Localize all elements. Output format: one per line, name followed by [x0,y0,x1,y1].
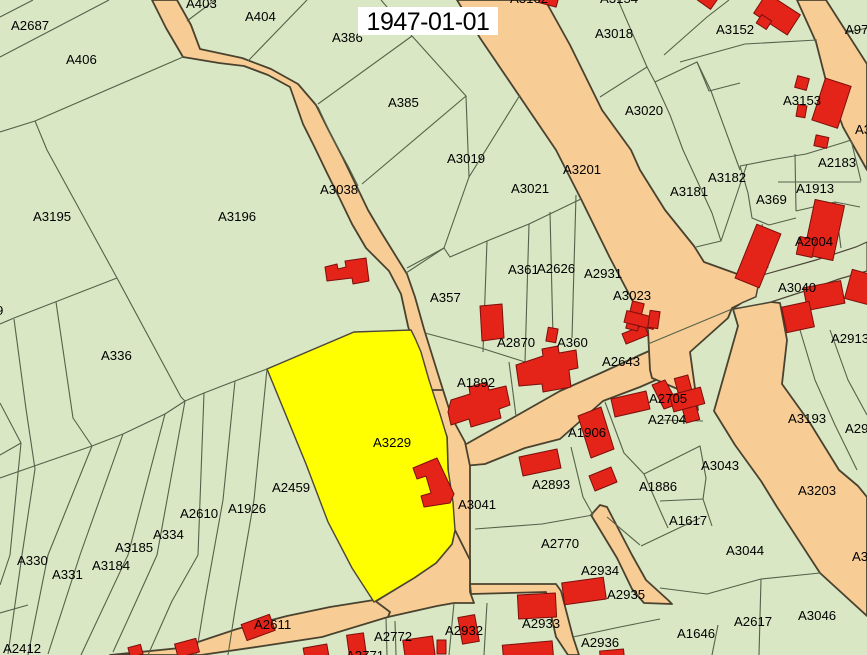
svg-text:A2611: A2611 [254,617,291,632]
svg-text:A1926: A1926 [228,501,266,516]
svg-text:A2687: A2687 [11,18,49,33]
svg-text:A2771: A2771 [346,648,384,655]
svg-text:A2770: A2770 [541,536,579,551]
svg-text:A357: A357 [430,290,461,305]
svg-text:A29: A29 [845,421,867,436]
svg-text:A3021: A3021 [511,181,549,196]
svg-text:A2610: A2610 [180,506,218,521]
svg-text:A3195: A3195 [33,209,71,224]
svg-text:A3152: A3152 [716,22,754,37]
svg-text:A385: A385 [388,95,419,110]
svg-text:A3196: A3196 [218,209,256,224]
svg-text:A3046: A3046 [798,608,836,623]
svg-text:A3203: A3203 [798,483,836,498]
svg-text:A1617: A1617 [669,513,707,528]
svg-text:A1906: A1906 [568,425,606,440]
svg-text:A361: A361 [508,262,539,277]
svg-text:A3182: A3182 [708,170,746,185]
svg-text:A2643: A2643 [602,354,640,369]
svg-text:A3020: A3020 [625,103,663,118]
svg-text:A2183: A2183 [818,155,856,170]
svg-text:A2932: A2932 [445,623,483,638]
svg-text:A330: A330 [17,553,48,568]
svg-text:A2934: A2934 [581,563,619,578]
svg-text:A1646: A1646 [677,626,715,641]
svg-text:A3154: A3154 [600,0,638,6]
svg-text:A3: A3 [855,122,867,137]
svg-text:A2933: A2933 [522,616,560,631]
svg-text:A2870: A2870 [497,335,535,350]
svg-text:A97: A97 [845,22,867,37]
svg-text:A3018: A3018 [595,26,633,41]
svg-text:A360: A360 [557,335,588,350]
svg-text:A3041: A3041 [458,497,496,512]
svg-text:A3044: A3044 [726,543,764,558]
svg-text:A2893: A2893 [532,477,570,492]
svg-text:A3040: A3040 [778,280,816,295]
svg-text:1947-01-01: 1947-01-01 [367,8,490,36]
svg-text:A334: A334 [153,527,184,542]
svg-text:A3181: A3181 [670,184,708,199]
svg-text:A3201: A3201 [563,162,601,177]
svg-text:A3184: A3184 [92,558,130,573]
svg-text:A3153: A3153 [783,93,821,108]
svg-text:A3038: A3038 [320,182,358,197]
svg-text:A3185: A3185 [115,540,153,555]
svg-text:A3229: A3229 [373,435,411,450]
svg-text:A2617: A2617 [734,614,772,629]
svg-text:A30: A30 [852,549,867,564]
svg-text:A2931: A2931 [584,266,622,281]
svg-text:A1886: A1886 [639,479,677,494]
svg-text:A3043: A3043 [701,458,739,473]
svg-text:A403: A403 [186,0,217,11]
svg-text:A2705: A2705 [649,391,687,406]
svg-text:A2004: A2004 [795,234,833,249]
svg-text:A404: A404 [245,9,276,24]
svg-text:A2412: A2412 [3,641,41,655]
svg-text:A3023: A3023 [613,288,651,303]
svg-text:A2459: A2459 [272,480,310,495]
svg-text:A3193: A3193 [788,411,826,426]
svg-text:A369: A369 [756,192,787,207]
svg-text:A331: A331 [52,567,83,582]
svg-text:9: 9 [0,303,3,318]
svg-text:A3019: A3019 [447,151,485,166]
svg-text:A1913: A1913 [796,181,834,196]
svg-text:A3102: A3102 [510,0,548,6]
svg-text:A336: A336 [101,348,132,363]
svg-text:A2772: A2772 [374,629,412,644]
svg-text:A2935: A2935 [607,587,645,602]
svg-text:A2936: A2936 [581,635,619,650]
svg-text:A2626: A2626 [537,261,575,276]
svg-text:A2704: A2704 [648,412,686,427]
svg-text:A1892: A1892 [457,375,495,390]
svg-text:A2913: A2913 [831,331,867,346]
svg-text:A406: A406 [66,52,97,67]
